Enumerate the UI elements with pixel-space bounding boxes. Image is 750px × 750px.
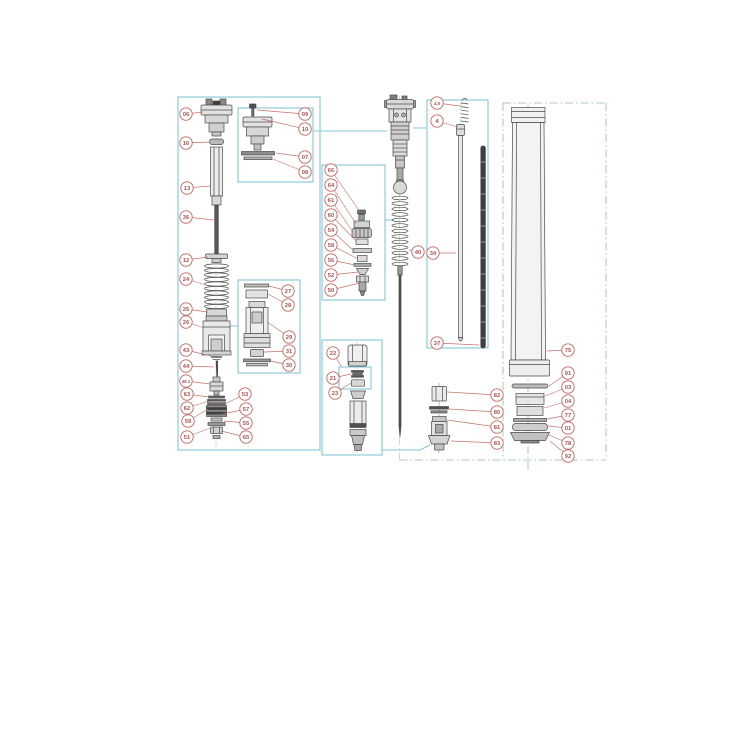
callout-number: 10: [302, 127, 308, 133]
callout-leader-line: [447, 392, 497, 395]
callout-12: 12: [180, 254, 208, 266]
left-assembly-parts: [201, 99, 232, 439]
fork-exploded-diagram: 0616133612242526434449.16362595153575565…: [0, 0, 750, 750]
callout-81: 81: [447, 420, 503, 433]
callout-04: 04: [544, 395, 574, 408]
callout-number: 28: [285, 303, 292, 309]
callout-number: 66: [328, 168, 335, 174]
callout-number: 92: [565, 454, 571, 460]
callout-leader-line: [447, 420, 497, 427]
callout-number: 63: [184, 392, 191, 398]
callout-number: 77: [565, 413, 571, 419]
callout-leader-line: [331, 170, 360, 212]
outer-tube-parts: [510, 108, 550, 444]
callout-23: 23: [329, 383, 351, 399]
callout-number: 4.5: [434, 101, 441, 106]
rod-detail-parts: [457, 98, 486, 348]
callout-07: 07: [276, 151, 311, 163]
callout-number: 53: [242, 392, 249, 398]
callout-22: 22: [327, 347, 341, 366]
callout-number: 56: [328, 258, 335, 264]
callout-number: 34: [430, 251, 437, 257]
bottom-fitting-parts: [429, 387, 451, 451]
callout-number: 01: [565, 426, 572, 432]
callout-number: 61: [328, 198, 335, 204]
callout-number: 57: [243, 407, 249, 413]
callout-number: 12: [183, 258, 189, 264]
callout-leader-line: [451, 441, 497, 443]
callout-06: 06: [180, 108, 203, 120]
callout-leader-line: [449, 409, 497, 412]
callout-78: 78: [549, 435, 574, 449]
callout-44: 44: [180, 360, 214, 372]
callout-number: 09: [302, 112, 309, 118]
callout-number: 07: [302, 155, 308, 161]
callout-number: 04: [565, 399, 572, 405]
callout-25: 25: [180, 303, 208, 315]
callout-49.1: 49.1: [180, 375, 210, 387]
callout-27: 27: [269, 285, 294, 297]
callout-65: 65: [221, 431, 252, 443]
detail-box-rods: [427, 100, 488, 348]
callout-52: 52: [325, 269, 358, 281]
piston-detail-parts: [348, 345, 367, 451]
callout-number: 21: [330, 376, 337, 382]
callout-number: 91: [565, 371, 572, 377]
callout-number: 24: [183, 277, 190, 283]
callout-4.5: 4.5: [431, 97, 460, 109]
callout-number: 31: [286, 349, 293, 355]
callout-number: 83: [494, 441, 501, 447]
callout-leader-line: [257, 110, 305, 114]
callout-number: 60: [328, 213, 334, 219]
callout-51: 51: [181, 428, 210, 443]
callout-01: 01: [548, 422, 574, 434]
callout-80: 80: [449, 406, 503, 418]
callout-number: 78: [565, 441, 572, 447]
callout-29: 29: [267, 322, 295, 343]
callout-number: 26: [183, 320, 190, 326]
callout-4: 4: [431, 115, 458, 127]
callout-number: 59: [185, 419, 192, 425]
callout-83: 83: [451, 437, 503, 449]
callout-number: 49.1: [182, 379, 191, 384]
callout-number: 54: [328, 228, 335, 234]
callout-number: 40: [415, 250, 421, 256]
callout-57: 57: [223, 403, 252, 415]
callout-number: 58: [328, 243, 335, 249]
callout-75: 75: [547, 344, 574, 356]
callout-82: 82: [447, 389, 503, 401]
callout-30: 30: [271, 359, 295, 371]
link-piston-box: [382, 445, 430, 450]
callout-number: 29: [286, 335, 293, 341]
cap-detail-parts: [242, 104, 275, 160]
base-valve-detail-parts: [244, 284, 271, 366]
callout-number: 13: [184, 186, 191, 192]
callout-number: 06: [183, 112, 190, 118]
callout-37: 37: [431, 337, 479, 349]
callout-40: 40: [409, 246, 424, 258]
callout-53: 53: [225, 388, 251, 404]
main-cartridge-assembly: [385, 95, 416, 437]
callout-number: 80: [494, 410, 500, 416]
callout-number: 30: [286, 363, 292, 369]
callout-number: 52: [328, 273, 334, 279]
callout-50: 50: [325, 283, 360, 296]
callout-36: 36: [180, 211, 214, 223]
callout-56: 56: [325, 254, 355, 266]
callout-number: 23: [332, 391, 339, 397]
callout-13: 13: [181, 182, 210, 194]
callout-number: 55: [243, 421, 250, 427]
callout-number: 81: [494, 425, 501, 431]
callout-number: 82: [494, 393, 500, 399]
callout-number: 43: [183, 348, 190, 354]
callout-number: 51: [184, 435, 191, 441]
callout-number: 08: [302, 170, 309, 176]
callout-62: 62: [181, 401, 209, 414]
callout-number: 27: [285, 289, 291, 295]
callout-number: 16: [183, 141, 190, 147]
callout-number: 50: [328, 288, 334, 294]
callout-34: 34: [427, 247, 456, 259]
callout-number: 25: [183, 307, 190, 313]
callout-55: 55: [224, 417, 252, 429]
callout-number: 22: [330, 351, 336, 357]
callout-number: 36: [183, 215, 190, 221]
callout-03: 03: [545, 381, 574, 396]
callout-77: 77: [547, 409, 574, 421]
parts-diagram-page: 0616133612242526434449.16362595153575565…: [0, 0, 750, 750]
callout-63: 63: [181, 388, 209, 400]
callout-number: 03: [565, 385, 572, 391]
callout-26: 26: [180, 316, 204, 328]
callout-number: 44: [183, 364, 190, 370]
callout-24: 24: [180, 273, 206, 285]
callout-number: 62: [184, 406, 190, 412]
callout-number: 65: [243, 435, 250, 441]
callout-16: 16: [180, 137, 210, 149]
callout-number: 37: [434, 341, 440, 347]
callout-number: 75: [565, 348, 572, 354]
callout-number: 64: [328, 183, 335, 189]
